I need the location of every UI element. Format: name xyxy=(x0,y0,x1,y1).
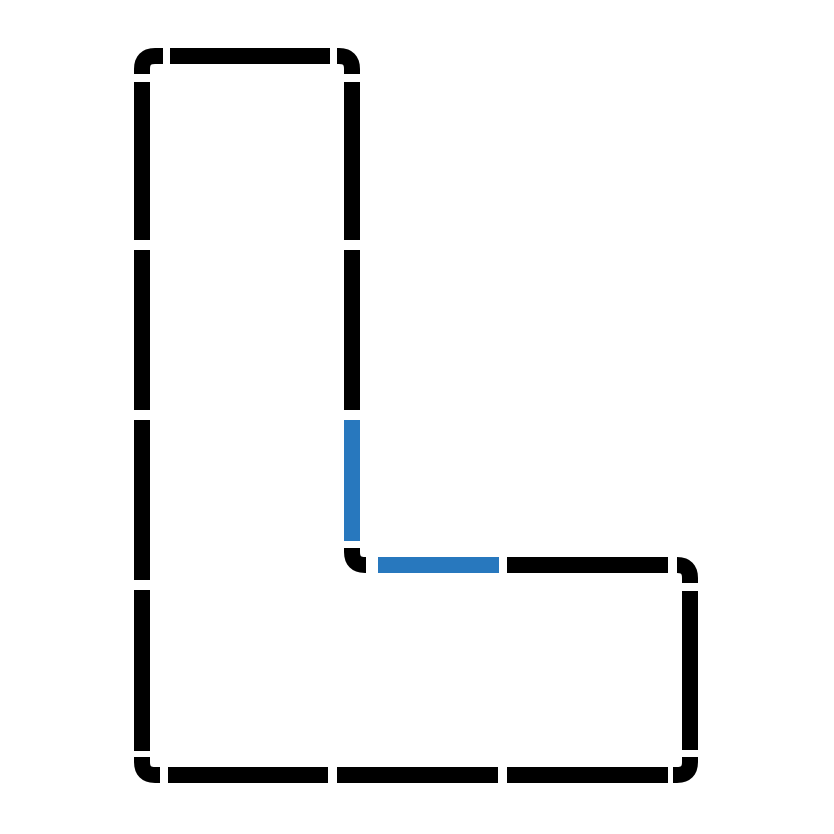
corner-bottom-left-piece xyxy=(142,757,160,775)
corner-bottom-right-piece xyxy=(673,757,690,775)
corner-stem-top-right-piece xyxy=(337,56,352,74)
corner-inner-piece xyxy=(352,548,366,565)
canvas xyxy=(0,0,834,834)
l-shape-figure xyxy=(0,0,834,834)
corner-top-left-piece xyxy=(142,56,163,74)
corner-foot-top-right-piece xyxy=(677,565,690,583)
